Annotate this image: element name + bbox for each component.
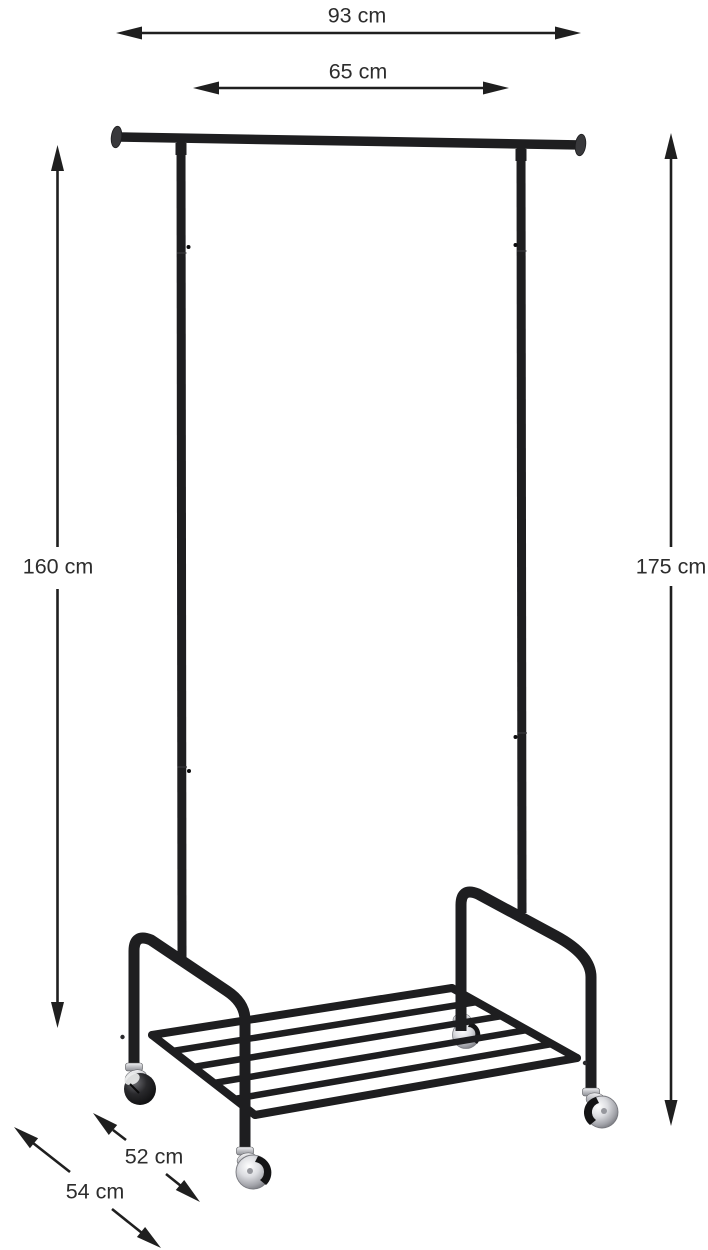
clothes-rack bbox=[110, 126, 618, 1189]
dimension-label-right-height: 175 cm bbox=[633, 554, 708, 580]
dimension-label-depth-upper: 52 cm bbox=[122, 1144, 187, 1170]
bottom-shelf bbox=[152, 988, 577, 1115]
rear-left-caster bbox=[122, 1063, 156, 1105]
dimension-diagram: 93 cm 65 cm 160 cm 175 cm 52 cm 54 cm bbox=[0, 0, 708, 1250]
dimension-label-left-height: 160 cm bbox=[20, 554, 97, 580]
rail-end-cap-left bbox=[110, 126, 123, 149]
left-pole-lower-screw bbox=[187, 769, 191, 773]
dimension-label-depth-lower: 54 cm bbox=[63, 1179, 128, 1205]
shelf-bolt bbox=[583, 1061, 587, 1065]
left-pole bbox=[177, 141, 191, 958]
dimension-arrow-right-height bbox=[665, 133, 678, 1126]
shelf-bolt bbox=[120, 1035, 124, 1039]
dimension-arrow-left-height bbox=[51, 145, 64, 1028]
front-left-caster bbox=[236, 1147, 272, 1189]
dimension-label-total-width: 93 cm bbox=[325, 3, 390, 29]
dimension-annotations bbox=[14, 27, 678, 1249]
right-pole-upper-screw bbox=[514, 243, 518, 247]
right-pole-lower-screw bbox=[514, 735, 518, 739]
front-right-caster bbox=[583, 1088, 619, 1128]
dimension-label-rail-width: 65 cm bbox=[326, 59, 391, 85]
right-pole bbox=[514, 147, 528, 913]
rail-end-cap-right bbox=[574, 134, 587, 157]
left-pole-upper-screw bbox=[187, 245, 191, 249]
rack-illustration bbox=[0, 0, 708, 1250]
